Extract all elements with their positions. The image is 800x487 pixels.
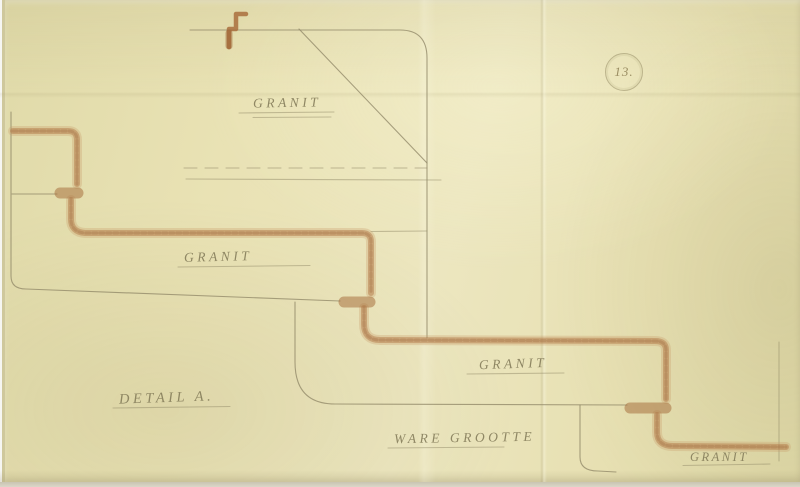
label-granit-top: GRANIT bbox=[253, 94, 322, 111]
left-block-outline bbox=[11, 112, 340, 301]
step1-edge bbox=[13, 131, 77, 184]
lower-block-underside bbox=[580, 405, 616, 472]
label-ware-grootte: WARE GROOTTE bbox=[394, 429, 535, 447]
middle-block-underside bbox=[295, 302, 627, 405]
label-granit-left: GRANIT bbox=[184, 248, 253, 266]
upper-block-outline bbox=[190, 30, 427, 338]
label-granit-right: GRANIT bbox=[479, 355, 548, 373]
label-detail-a: DETAIL A. bbox=[119, 388, 215, 408]
technical-drawing bbox=[0, 0, 800, 487]
step3-edge bbox=[364, 308, 666, 399]
step2-edge bbox=[71, 200, 371, 293]
sheet-number: 13. bbox=[614, 64, 633, 80]
sheet-number-circle: 13. bbox=[605, 53, 643, 91]
label-underlines bbox=[113, 112, 770, 466]
joint-line bbox=[186, 179, 441, 180]
scanned-drawing-sheet: GRANIT GRANIT GRANIT GRANIT DETAIL A. WA… bbox=[0, 0, 800, 487]
step2-top-extension bbox=[371, 231, 427, 232]
label-granit-bottom: GRANIT bbox=[690, 450, 749, 465]
